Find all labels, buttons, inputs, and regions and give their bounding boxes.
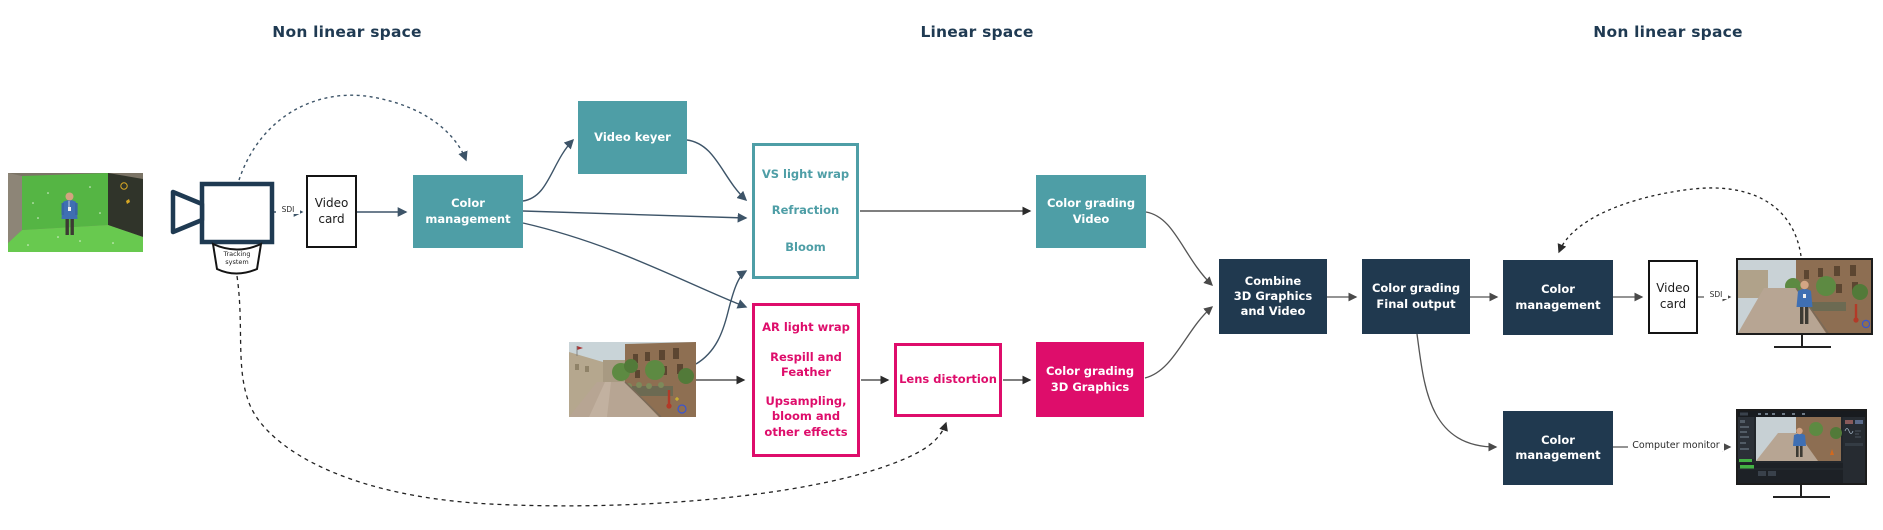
combine-box: Combine 3D Graphics and Video [1219,259,1327,334]
color-management-monitor-box: Color management [1503,411,1613,485]
color-management-out-box: Color management [1503,260,1613,335]
ar-effects-item: AR light wrap [762,320,850,335]
computer-monitor-image [1738,411,1865,483]
preview-viewport [1756,417,1842,461]
tracking-system-label: Tracking system [212,250,262,266]
video-card-out-line: card [1660,297,1686,313]
color-grading-3d-line: Color grading [1046,364,1134,379]
lens-distortion-box: Lens distortion [894,343,1002,417]
ar-effects-line: Feather [770,365,842,380]
combine-line: 3D Graphics [1234,289,1312,304]
pipeline-diagram: Non linear space Linear space Non linear… [0,0,1883,530]
ar-effects-line: other effects [764,425,847,440]
vs-effects-item: VS light wrap [762,167,849,182]
ar-effects-line: bloom and [764,409,847,424]
greenscreen-photo [8,173,143,252]
color-grading-video-box: Color grading Video [1036,175,1146,248]
combine-line: and Video [1241,304,1306,319]
vs-effects-item: Refraction [772,203,839,218]
ar-effects-box: AR light wrap Respill and Feather Upsamp… [752,303,860,457]
video-card-in-line: Video [315,196,349,212]
color-management-out-line: Color [1541,282,1575,297]
color-management-monitor-line: management [1515,448,1600,463]
video-keyer-line: Video keyer [594,130,671,145]
color-grading-final-line: Color grading [1372,281,1460,296]
color-management-in-line: management [425,212,510,227]
ar-effects-line: Upsampling, [764,394,847,409]
vs-effects-box: VS light wrap Refraction Bloom [752,143,859,279]
video-card-out-line: Video [1656,281,1690,297]
computer-monitor [1736,409,1867,485]
color-grading-final-box: Color grading Final output [1362,259,1470,334]
color-grading-3d-line: 3D Graphics [1051,380,1129,395]
lens-distortion-line: Lens distortion [899,372,997,387]
computer-monitor-label: Computer monitor [1628,441,1724,451]
ar-effects-item: Respill and Feather [770,350,842,380]
video-card-out-box: Video card [1648,260,1698,334]
color-grading-video-line: Video [1073,212,1110,227]
sdi-out-label: SDI [1704,291,1728,299]
sdi-monitor [1736,258,1873,335]
ar-effects-line: AR light wrap [762,320,850,335]
ar-effects-line: Respill and [770,350,842,365]
color-management-out-line: management [1515,298,1600,313]
tracking-system-line: Tracking [212,250,262,258]
render-photo [569,342,696,417]
vs-effects-item: Bloom [785,240,826,255]
ar-effects-item: Upsampling, bloom and other effects [764,394,847,440]
video-keyer-box: Video keyer [578,101,687,174]
sdi-in-label: SDI [276,206,300,214]
video-card-in-line: card [318,212,344,228]
color-grading-final-line: Final output [1376,297,1455,312]
color-management-in-line: Color [451,196,485,211]
video-card-in-box: Video card [306,175,357,248]
color-grading-video-line: Color grading [1047,196,1135,211]
sdi-monitor-image [1738,260,1871,333]
color-management-monitor-line: Color [1541,433,1575,448]
color-management-in-box: Color management [413,175,523,248]
color-grading-3d-box: Color grading 3D Graphics [1036,342,1144,417]
combine-line: Combine [1245,274,1301,289]
tracking-system-line: system [212,258,262,266]
